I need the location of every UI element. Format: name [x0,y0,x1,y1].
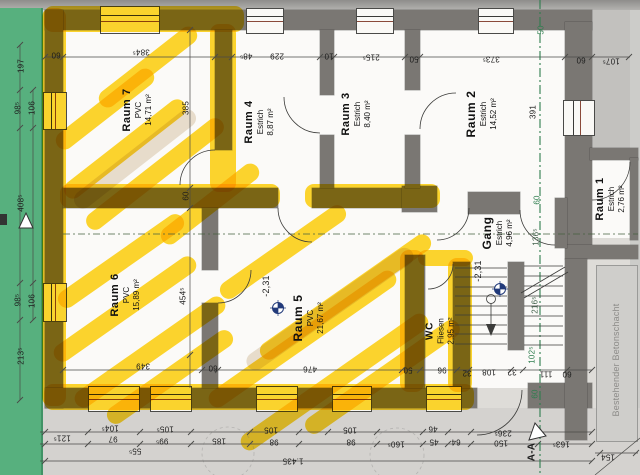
dimension-label: 50 [409,55,418,64]
room-name: Gang [480,216,494,249]
dimension-label: 60 [182,191,191,200]
dimension-label: 60 [533,195,542,204]
dimension-label: 150 [494,439,508,448]
dimension-label: 215⁵ [362,53,379,62]
room-area: 4,96 m² [505,216,514,249]
dimension-label: 32 [507,368,516,377]
room-area: 2,76 m² [617,177,626,220]
dimension-label: 98⁵ [14,102,23,115]
dimension-label: 60 [576,56,585,65]
dimension-label: 48⁵ [240,52,253,61]
dimension-label: 213⁵ [17,347,26,364]
room-floor-type: Fliesen [437,317,446,344]
room-floor-type: Estrich [607,177,616,220]
dimension-label: 104⁵ [101,424,118,433]
room-floor-type: Estrich [479,91,488,138]
room-area: 8,40 m² [363,92,372,135]
dimension-label: 108 [482,368,496,377]
dimension-label: 32 [462,369,471,378]
room-label: WCFliesen2,95 m² [425,317,456,344]
dimension-label: 105 [264,426,278,435]
dimension-label: 236⁵ [494,429,511,438]
room-floor-type: PVC [122,273,131,316]
room-label: Raum 5PVC21,67 m² [291,295,325,342]
room-area: 2,95 m² [447,317,456,344]
dimension-label: 349 [136,362,150,371]
dimension-label: 476 [303,365,317,374]
dimension-label: 46 [428,425,437,434]
stamp-ghost [370,428,424,475]
room-floor-type: Estrich [353,92,362,135]
dimension-label: 454⁵ [179,287,188,304]
room-floor-type: Estrich [495,216,504,249]
room-floor-type: PVC [134,88,143,131]
room-name: Raum 2 [464,91,478,138]
room-label: GangEstrich4,96 m² [480,216,514,249]
dimension-label: 384⁵ [132,48,149,57]
room-name: Raum 4 [243,100,255,143]
dimension-label: A-A [527,443,538,461]
dimension-label: 107⁵ [602,57,619,66]
benchmark-symbol [270,300,286,316]
dimension-label: 50 [537,25,546,34]
dimension-label: 60 [51,51,60,60]
section-marker-triangle [529,423,546,440]
room-name: Raum 7 [121,88,133,131]
dimension-label: 121⁵ [53,434,70,443]
dimension-label: 60 [562,370,571,379]
dimension-label: 391 [529,105,538,119]
room-label: Raum 6PVC15,89 m² [109,273,141,316]
dimension-label: 373⁵ [482,55,499,64]
dimension-label: -2,31 [261,275,271,297]
dimension-label: 385 [182,101,191,115]
dimension-label: 55⁵ [129,447,142,456]
room-name: WC [425,317,436,344]
linework-overlay [0,0,640,475]
room-label: Raum 3Estrich8,40 m² [340,92,372,135]
stamp-ghost [202,427,254,475]
room-area: 21,67 m² [316,295,325,342]
dimension-label: 98 [269,438,278,447]
dimension-label: 106 [28,294,37,308]
stairs [455,266,568,345]
dimension-label: Bestehender Betonschacht [611,304,621,417]
dimension-label: 98 [346,438,355,447]
room-name: Raum 1 [594,177,606,220]
room-label: Raum 2Estrich14,52 m² [464,91,498,138]
door-arcs [180,93,630,435]
dimension-label: 50 [403,366,412,375]
room-label: Raum 1Estrich2,76 m² [594,177,626,220]
room-area: 15,89 m² [132,273,141,316]
room-area: 14,71 m² [144,88,153,131]
dimension-label: 64 [451,438,460,447]
dimension-label: 102⁵ [528,346,537,363]
room-name: Raum 5 [291,295,305,342]
dimension-label: 216⁵ [531,296,540,313]
dimension-label: 60 [208,364,217,373]
room-area: 8,87 m² [266,100,275,143]
dimension-label: 163⁵ [552,440,569,449]
dimension-label: 105⁵ [156,425,173,434]
left-marker-triangle [19,213,33,228]
dimension-label: 96 [437,366,446,375]
dimension-label: 408⁵ [17,194,26,211]
dimension-label: 197 [17,59,26,73]
benchmark-symbol [492,281,508,297]
left-edge-glyph [0,214,7,225]
dimension-label: 99⁵ [156,437,169,446]
room-name: Raum 3 [340,92,352,135]
room-floor-type: PVC [306,295,315,342]
dimension-label: 160⁵ [387,440,404,449]
room-name: Raum 6 [109,273,121,316]
dimension-label: 10 [324,52,333,61]
room-label: Raum 7PVC14,71 m² [121,88,153,131]
dimension-label: 1.435 [282,457,303,466]
dimension-label: 45 [429,438,438,447]
dimension-label: 106 [28,101,37,115]
room-area: 14,52 m² [489,91,498,138]
dimension-label: 105 [343,426,357,435]
dimension-label: 60 [531,389,540,398]
room-floor-type: Estrich [256,100,265,143]
dimension-label: 229 [270,52,284,61]
dimension-label: -2,31 [473,260,483,282]
dimension-label: 111 [540,370,553,379]
dimension-label: 136⁵ [532,228,541,245]
dimension-label: 154 [601,453,615,462]
dimension-label: 97 [108,435,117,444]
dimension-label: 185 [212,437,226,446]
room-label: Raum 4Estrich8,87 m² [243,100,275,143]
dimension-label: 98⁵ [14,294,23,307]
floor-plan-scan: 60384⁵48⁵22910215⁵50373⁵60107⁵5019798⁵10… [0,0,640,475]
